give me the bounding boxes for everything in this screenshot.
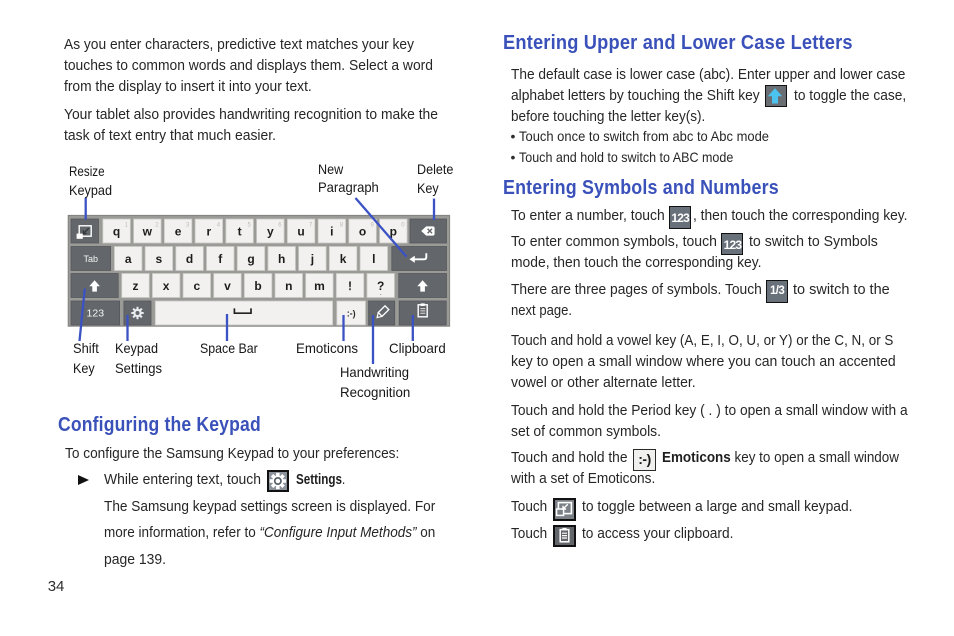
svg-text:h: h (278, 252, 285, 266)
svg-text:g: g (247, 252, 254, 266)
svg-text:l: l (372, 252, 375, 266)
svg-text:e: e (175, 224, 182, 238)
svg-text:d: d (186, 252, 193, 266)
svg-text:123: 123 (87, 308, 105, 320)
svg-text:w: w (142, 224, 153, 238)
svg-text:k: k (340, 252, 347, 266)
svg-text:m: m (314, 279, 325, 293)
svg-text:o: o (359, 224, 366, 238)
svg-text:b: b (254, 279, 261, 293)
svg-text:x: x (163, 279, 170, 293)
svg-text:q: q (113, 224, 120, 238)
svg-text:.: . (380, 288, 382, 297)
svg-text:i: i (330, 224, 333, 238)
svg-text:v: v (224, 279, 231, 293)
svg-text:p: p (390, 224, 397, 238)
svg-text:z: z (133, 279, 139, 293)
svg-text:y: y (267, 224, 274, 238)
svg-text:s: s (156, 252, 163, 266)
svg-text:c: c (193, 279, 200, 293)
svg-text::-): :-) (347, 309, 356, 319)
svg-text:Tab: Tab (84, 254, 99, 264)
svg-text:r: r (207, 224, 212, 238)
svg-text:t: t (238, 224, 242, 238)
svg-text:n: n (285, 279, 292, 293)
svg-text:j: j (310, 252, 314, 266)
svg-text:a: a (125, 252, 132, 266)
svg-text:u: u (297, 224, 304, 238)
